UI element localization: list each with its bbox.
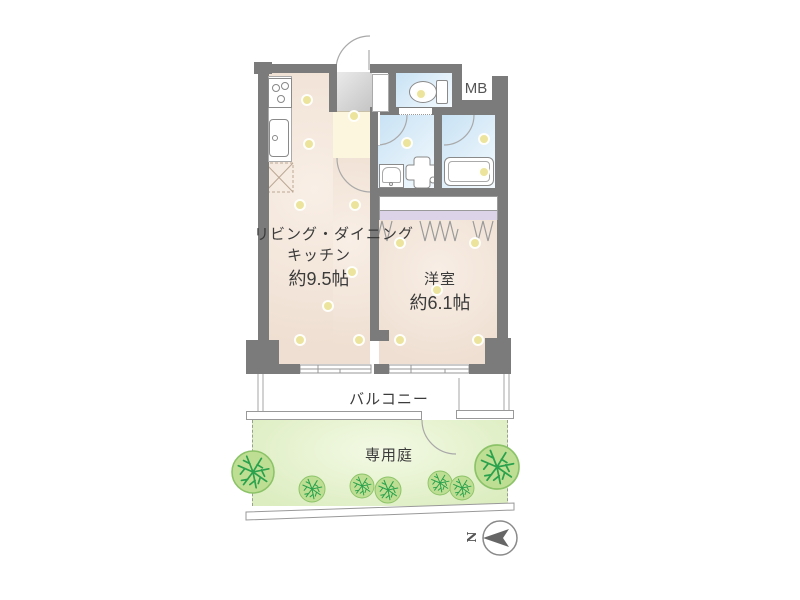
washing-machine-pan [379, 164, 404, 188]
ldk-size: 約9.5帖 [254, 265, 384, 291]
floor-texture-dot [469, 237, 481, 249]
compass-north-label: N [465, 528, 481, 546]
floor-plan: リビング・ダイニング キッチン 約9.5帖 洋室 約6.1帖 バルコニー 専用庭… [0, 0, 800, 600]
floor-texture-dot [349, 199, 361, 211]
meter-box-label: MB [460, 80, 492, 97]
stove-burner [281, 82, 289, 90]
floor-texture-dot [394, 237, 406, 249]
stove-burner [272, 84, 280, 92]
washroom-door-opening [378, 112, 380, 145]
floor-texture-dot [294, 334, 306, 346]
floor-texture-dot [346, 266, 358, 278]
shoe-cabinet [372, 74, 389, 112]
balcony-edge-left [246, 411, 422, 420]
floor-texture-dot [472, 334, 484, 346]
floor-texture-dot [431, 284, 443, 296]
compass [483, 521, 517, 555]
kitchen-sink [269, 119, 289, 157]
floor-texture-dot [301, 94, 313, 106]
garden-label: 専用庭 [329, 444, 449, 465]
floor-texture-dot [478, 133, 490, 145]
floor-texture-dot [401, 137, 413, 149]
entrance-door-arc [336, 36, 370, 70]
floor-texture-dot [415, 88, 427, 100]
toilet-tank [436, 80, 448, 104]
floor-texture-dot [353, 334, 365, 346]
closet [379, 196, 498, 211]
floor-texture-dot [303, 138, 315, 150]
compass-circle [483, 521, 517, 555]
balcony-label: バルコニー [329, 388, 449, 409]
ldk-label-line1: リビング・ダイニング [254, 223, 384, 244]
bedroom-window [389, 365, 469, 373]
stove-burner [277, 95, 285, 103]
floor-texture-dot [394, 334, 406, 346]
stove [268, 78, 292, 108]
ldk-window [300, 365, 371, 373]
floor-texture-dot [478, 166, 490, 178]
closet-shelf [379, 211, 498, 220]
ldk-label: リビング・ダイニング キッチン 約9.5帖 [254, 223, 384, 291]
entrance-step [333, 72, 372, 112]
ldk-label-line2: キッチン [254, 244, 384, 265]
north-arrow-icon [483, 529, 509, 547]
floor-texture-dot [294, 199, 306, 211]
floor-texture-dot [322, 300, 334, 312]
balcony-edge-right [456, 410, 514, 419]
floor-texture-dot [348, 110, 360, 122]
toilet-sliding-door [399, 108, 432, 115]
